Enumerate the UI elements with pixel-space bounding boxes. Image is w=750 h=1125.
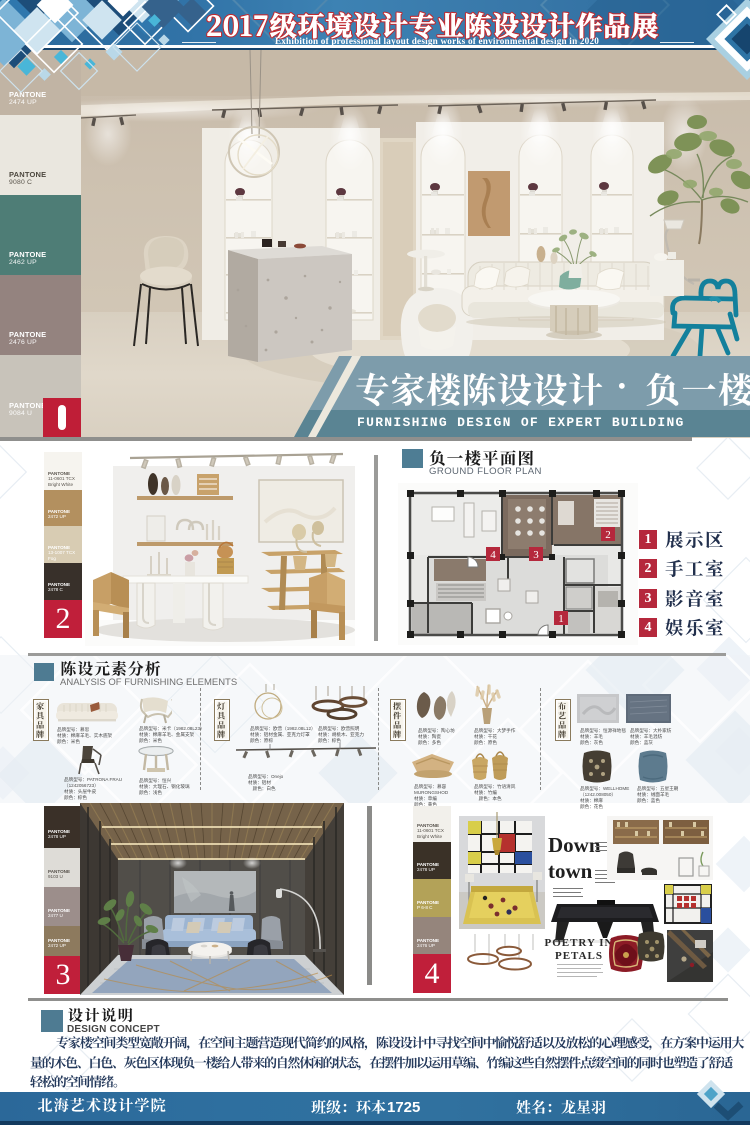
svg-text:PETALS: PETALS <box>555 950 603 962</box>
svg-text:POETRY IN: POETRY IN <box>544 937 613 949</box>
svg-text:1: 1 <box>558 613 564 625</box>
svg-text:2: 2 <box>605 529 611 541</box>
svg-text:town: town <box>548 859 593 883</box>
svg-text:3: 3 <box>533 549 539 561</box>
svg-text:Down: Down <box>548 833 601 857</box>
svg-text:4: 4 <box>490 549 496 561</box>
